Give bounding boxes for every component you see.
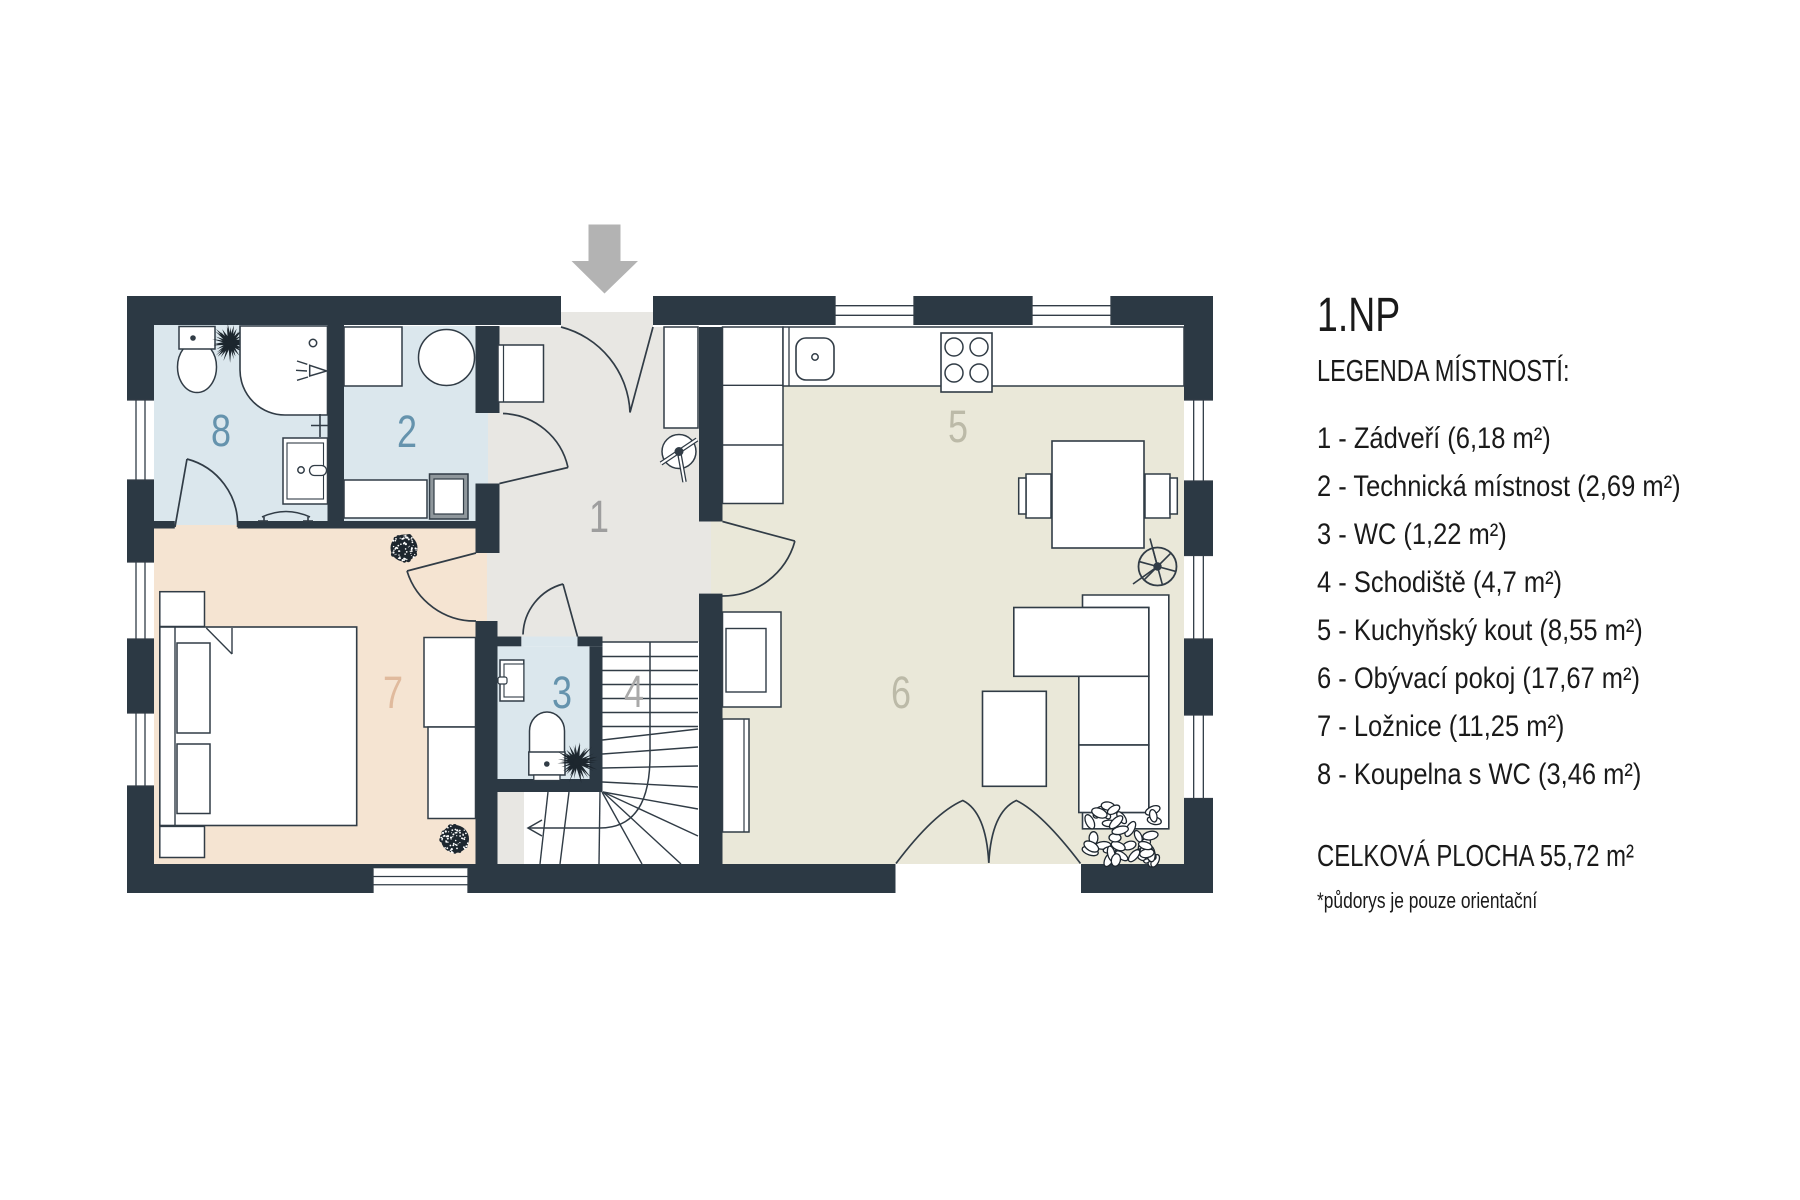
svg-text:7: 7 [383,667,403,718]
svg-text:4: 4 [624,666,644,717]
svg-text:8 - Koupelna s WC (3,46 m²): 8 - Koupelna s WC (3,46 m²) [1317,757,1641,790]
svg-text:8: 8 [211,405,231,456]
svg-text:6 - Obývací pokoj (17,67 m²): 6 - Obývací pokoj (17,67 m²) [1317,661,1640,694]
svg-text:3 - WC (1,22 m²): 3 - WC (1,22 m²) [1317,517,1507,550]
svg-text:LEGENDA MÍSTNOSTÍ:: LEGENDA MÍSTNOSTÍ: [1317,353,1570,388]
svg-text:2 - Technická místnost (2,69 m: 2 - Technická místnost (2,69 m²) [1317,469,1681,502]
svg-text:1 - Zádveří (6,18 m²): 1 - Zádveří (6,18 m²) [1317,421,1551,454]
svg-text:5 - Kuchyňský kout (8,55 m²): 5 - Kuchyňský kout (8,55 m²) [1317,613,1643,646]
svg-text:1.NP: 1.NP [1317,289,1400,343]
svg-text:5: 5 [948,401,968,452]
svg-text:3: 3 [552,667,572,718]
svg-text:4 - Schodiště (4,7 m²): 4 - Schodiště (4,7 m²) [1317,565,1562,598]
svg-text:6: 6 [891,667,911,718]
svg-text:*půdorys je pouze orientační: *půdorys je pouze orientační [1317,889,1538,913]
svg-text:1: 1 [589,491,609,542]
svg-text:7 - Ložnice (11,25 m²): 7 - Ložnice (11,25 m²) [1317,709,1564,742]
svg-text:2: 2 [397,406,417,457]
svg-text:CELKOVÁ PLOCHA 55,72 m²: CELKOVÁ PLOCHA 55,72 m² [1317,838,1634,873]
